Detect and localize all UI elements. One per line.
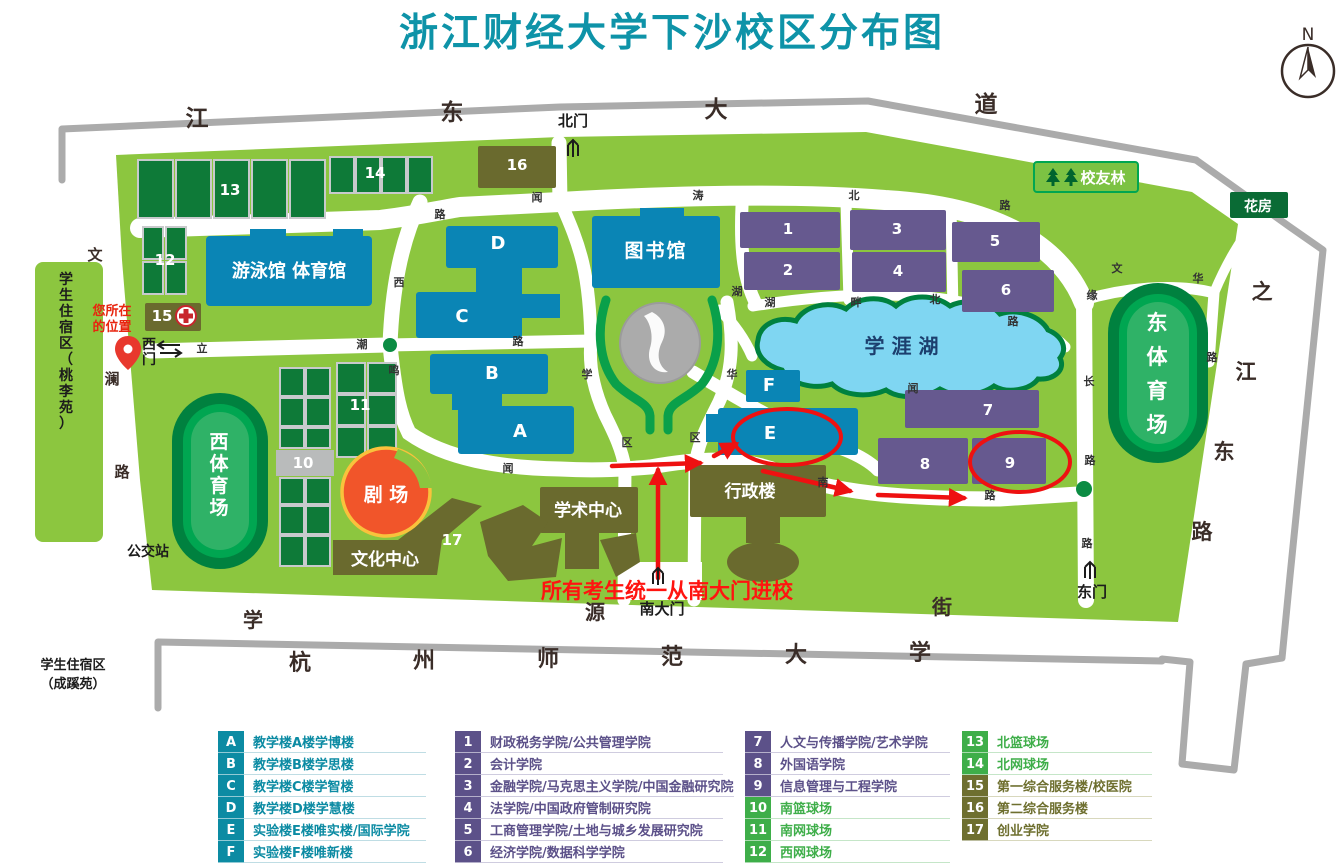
road-mid-horizontal: [388, 341, 591, 345]
road-xueyuan-street: 学: [243, 608, 263, 632]
building-a-label: A: [513, 421, 527, 442]
hangzhou-normal-univ: 大: [785, 643, 807, 668]
road-jiangdong-avenue: 大: [705, 97, 728, 123]
west-stadium-label: 西体育场: [209, 431, 229, 519]
route-arrow-right-2: [878, 495, 964, 498]
gate-north-label: 北门: [558, 112, 588, 130]
court-11-label: 11: [350, 396, 371, 414]
road-char: 路: [435, 207, 447, 221]
road-block-12: [846, 203, 849, 300]
road-char: 北: [930, 292, 941, 306]
road-zhijiang-east: 江: [1236, 360, 1257, 384]
alumni-forest-label: 校友林: [1080, 169, 1126, 187]
road-char: 潮: [357, 337, 368, 351]
building-d-label: D: [491, 233, 506, 254]
building-7-label: 7: [983, 401, 993, 419]
campus-map: N 江东大道之江东路学源街杭州师范大学文澜路闻涛北路路西立潮鸣路闻区区学湖华湖畔…: [0, 0, 1344, 866]
road-char: 湖: [732, 284, 743, 298]
road-char: 路: [985, 488, 997, 502]
road-xueyuan-street: 街: [931, 595, 952, 619]
hangzhou-normal-univ: 师: [537, 646, 559, 672]
dorm-south-label: （成蹊苑）: [40, 676, 105, 692]
road-wenlan: 文: [87, 246, 103, 264]
road-wenlan: 路: [114, 463, 130, 481]
natatorium-label: 游泳馆 体育馆: [232, 260, 346, 282]
road-char: 缘: [1087, 288, 1098, 302]
road-zhijiang-east: 路: [1192, 520, 1214, 544]
road-char: 华: [1193, 271, 1204, 285]
gate-east-label: 东门: [1077, 583, 1107, 601]
road-char: 路: [1000, 198, 1012, 212]
page-title: 浙江财经大学下沙校区分布图: [0, 2, 1344, 58]
road-zhijiang-east: 之: [1252, 280, 1273, 304]
hangzhou-normal-univ: 州: [413, 649, 435, 674]
road-char: 路: [1008, 314, 1020, 328]
building-f-label: F: [763, 375, 775, 396]
road-char: 闻: [503, 461, 514, 475]
culture-center-label: 文化中心: [351, 549, 419, 570]
court-14-label: 14: [365, 164, 386, 182]
building-b-label: B: [485, 363, 499, 384]
building-2-label: 2: [783, 261, 793, 279]
road-char: 文: [1112, 261, 1124, 275]
building-16-label: 16: [507, 156, 528, 174]
hangzhou-normal-univ: 学: [909, 640, 931, 666]
road-char: 立: [197, 341, 208, 355]
building-5-label: 5: [990, 232, 1000, 250]
road-char: 涛: [693, 188, 704, 202]
building-7: [905, 390, 1039, 428]
your-location-label: 的位置: [92, 319, 131, 335]
road-char: 区: [690, 431, 701, 444]
court-12-label: 12: [155, 251, 176, 269]
dorm-west-label: 学生住宿区（桃李苑）: [58, 271, 74, 432]
road-char: 路: [1085, 453, 1097, 467]
road-char: 路: [513, 334, 525, 348]
building-3-label: 3: [892, 220, 902, 238]
road-char: 学: [582, 367, 593, 381]
road-char: 南: [818, 475, 829, 489]
library-label: 图书馆: [624, 239, 687, 262]
dorm-south-label: 学生住宿区: [40, 657, 105, 673]
building-1-label: 1: [783, 220, 793, 238]
bus-stop-label: 公交站: [127, 543, 169, 560]
road-wenlan: 澜: [104, 370, 119, 388]
road-char: 华: [727, 367, 738, 381]
hangzhou-normal-univ: 杭: [289, 650, 311, 676]
your-location-label: 您所在: [92, 303, 131, 319]
building-4-label: 4: [893, 262, 903, 280]
road-jiangdong-avenue: 东: [441, 99, 464, 126]
building-8-label: 8: [920, 455, 930, 473]
lake-label: 学涯湖: [865, 334, 946, 358]
gate-west-label: 西: [142, 337, 156, 353]
road-char: 长: [1084, 374, 1096, 388]
road-west-gate: [150, 345, 388, 351]
building-9-label: 9: [1005, 454, 1015, 472]
academic-center-label: 学术中心: [554, 500, 622, 521]
road-xueyuan-street: 源: [585, 600, 605, 624]
road-char: 湖: [765, 295, 776, 309]
road-north-gate: [559, 143, 560, 203]
hangzhou-normal-univ: 范: [661, 645, 683, 670]
road-char: 北: [849, 188, 860, 202]
road-char: 鸣: [389, 363, 400, 377]
roundabout-east: [1076, 481, 1092, 497]
building-c-label: C: [455, 306, 468, 327]
first-aid-icon: [176, 306, 196, 326]
gate-west-label: 门: [142, 351, 156, 368]
entry-notice: 所有考生统一从南大门进校: [541, 579, 794, 603]
road-jiangdong-avenue: 道: [975, 91, 998, 118]
admin-building-label: 行政楼: [724, 481, 776, 502]
road-char: 闻: [532, 190, 543, 204]
court-13-label: 13: [220, 181, 241, 199]
road-char: 畔: [851, 295, 862, 309]
road-jiangdong-avenue: 江: [186, 106, 209, 132]
road-char: 西: [394, 276, 405, 289]
road-char: 路: [1082, 536, 1094, 550]
road-char: 路: [1207, 350, 1219, 364]
building-17-label: 17: [442, 531, 463, 549]
theater-label: 剧 场: [364, 484, 409, 506]
building-6-label: 6: [1001, 281, 1011, 299]
building-e-label: E: [764, 423, 776, 444]
route-arrow-right-1: [612, 463, 700, 466]
road-zhijiang-east: 东: [1214, 440, 1235, 464]
road-char: 区: [622, 436, 633, 449]
greenhouse-label: 花房: [1244, 198, 1272, 215]
court-10-label: 10: [293, 454, 314, 472]
building-15-label: 15: [152, 307, 173, 325]
road-east-vertical: [1084, 300, 1086, 600]
roundabout-west: [383, 338, 397, 352]
road-char: 闻: [908, 381, 919, 395]
